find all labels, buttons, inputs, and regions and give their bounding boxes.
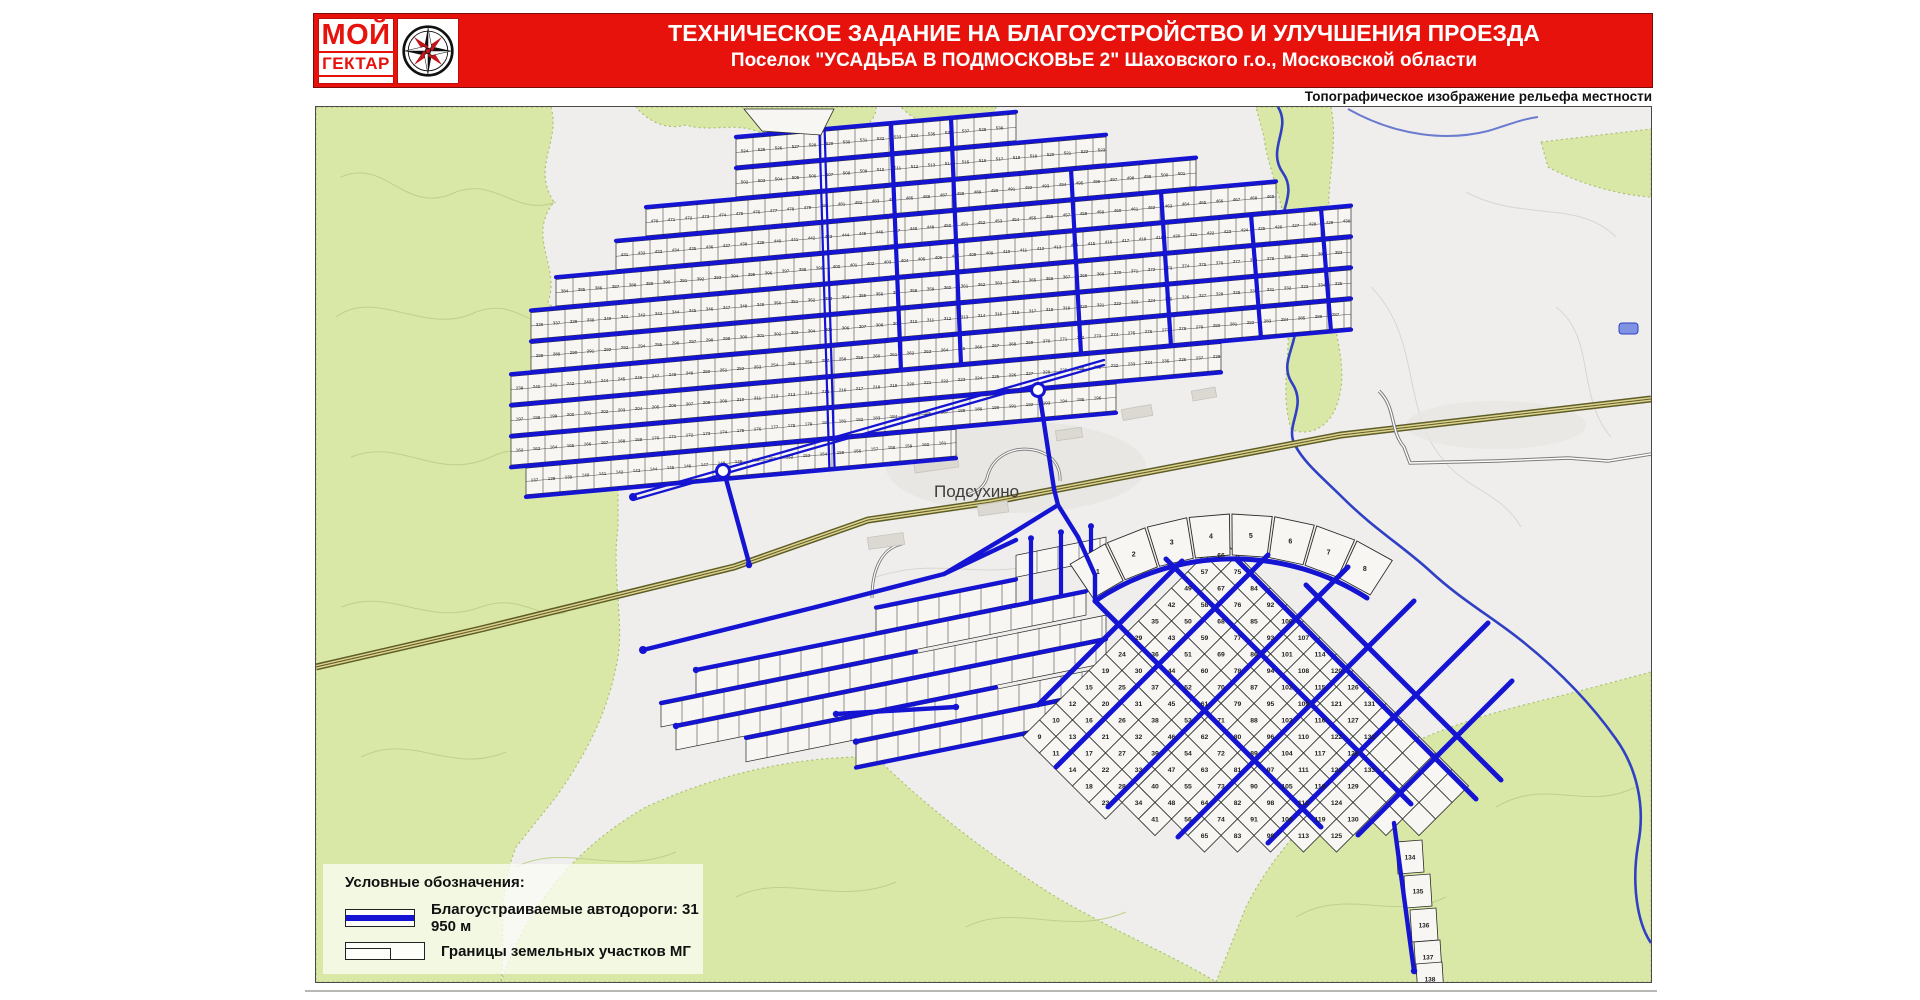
svg-text:133: 133 (1364, 767, 1376, 774)
svg-text:317: 317 (1029, 309, 1037, 314)
svg-text:132: 132 (1364, 734, 1376, 741)
svg-text:405: 405 (918, 257, 926, 262)
svg-text:97: 97 (1267, 767, 1275, 774)
svg-text:500: 500 (1161, 173, 1169, 178)
svg-text:139: 139 (565, 474, 573, 479)
svg-text:124: 124 (1331, 800, 1343, 807)
svg-text:332: 332 (1284, 286, 1292, 291)
svg-text:385: 385 (578, 287, 586, 292)
svg-text:5: 5 (1249, 533, 1253, 540)
svg-text:393: 393 (714, 275, 722, 280)
svg-text:81: 81 (1234, 767, 1242, 774)
svg-text:313: 313 (961, 315, 969, 320)
village-label: Подсухино (934, 482, 1019, 501)
document-subtitle: Поселок "УСАДЬБА В ПОДМОСКОВЬЕ 2" Шаховс… (564, 50, 1644, 72)
svg-text:377: 377 (1233, 259, 1241, 264)
svg-text:206: 206 (669, 403, 677, 408)
svg-text:347: 347 (723, 305, 731, 310)
svg-text:173: 173 (703, 431, 711, 436)
svg-text:310: 310 (910, 319, 918, 324)
svg-text:343: 343 (655, 311, 663, 316)
svg-text:197: 197 (516, 417, 524, 422)
svg-text:51: 51 (1184, 652, 1192, 659)
svg-text:333: 333 (1301, 284, 1309, 289)
svg-text:314: 314 (978, 313, 986, 318)
svg-text:491: 491 (1008, 186, 1016, 191)
svg-text:196: 196 (1094, 396, 1102, 401)
svg-text:61: 61 (1201, 701, 1209, 708)
svg-text:82: 82 (1234, 800, 1242, 807)
svg-text:402: 402 (867, 261, 875, 266)
svg-text:168: 168 (618, 439, 626, 444)
svg-text:519: 519 (1030, 153, 1038, 158)
svg-text:161: 161 (939, 441, 947, 446)
svg-text:307: 307 (859, 324, 867, 329)
svg-text:52: 52 (1184, 685, 1192, 692)
svg-text:376: 376 (1216, 261, 1224, 266)
svg-text:355: 355 (859, 293, 867, 298)
svg-text:2: 2 (1132, 552, 1136, 559)
svg-text:120: 120 (1331, 668, 1343, 675)
svg-text:391: 391 (680, 278, 688, 283)
svg-text:421: 421 (1190, 232, 1198, 237)
svg-text:20: 20 (1102, 701, 1110, 708)
svg-text:87: 87 (1250, 685, 1258, 692)
svg-text:410: 410 (1003, 249, 1011, 254)
svg-text:445: 445 (859, 231, 867, 236)
svg-text:163: 163 (533, 446, 541, 451)
svg-text:360: 360 (944, 285, 952, 290)
svg-text:137: 137 (531, 477, 539, 482)
svg-text:92: 92 (1267, 602, 1275, 609)
legend-item-roads: Благоустраиваемые автодороги: 31 950 м (345, 901, 703, 935)
svg-text:513: 513 (928, 163, 936, 168)
svg-text:351: 351 (791, 299, 799, 304)
svg-text:403: 403 (884, 260, 892, 265)
svg-text:427: 427 (1292, 223, 1300, 228)
svg-text:45: 45 (1168, 701, 1176, 708)
svg-text:318: 318 (1046, 307, 1054, 312)
svg-text:274: 274 (1111, 332, 1119, 337)
svg-text:22: 22 (1102, 767, 1110, 774)
svg-text:237: 237 (1196, 355, 1204, 360)
svg-text:234: 234 (1145, 360, 1153, 365)
svg-text:379: 379 (1267, 256, 1275, 261)
svg-text:153: 153 (803, 453, 811, 458)
svg-text:297: 297 (689, 339, 697, 344)
svg-text:235: 235 (1162, 359, 1170, 364)
svg-text:423: 423 (1224, 229, 1232, 234)
svg-text:160: 160 (922, 442, 930, 447)
svg-text:394: 394 (731, 273, 739, 278)
svg-text:105: 105 (1281, 784, 1293, 791)
svg-text:349: 349 (757, 302, 765, 307)
svg-text:311: 311 (927, 318, 935, 323)
svg-text:291: 291 (587, 348, 595, 353)
svg-text:324: 324 (1148, 298, 1156, 303)
svg-text:242: 242 (567, 381, 575, 386)
svg-text:203: 203 (618, 408, 626, 413)
svg-text:527: 527 (792, 144, 800, 149)
svg-text:85: 85 (1250, 619, 1258, 626)
svg-text:112: 112 (1298, 800, 1309, 807)
svg-text:392: 392 (697, 276, 705, 281)
svg-text:288: 288 (536, 353, 544, 358)
svg-text:465: 465 (1199, 200, 1207, 205)
svg-text:460: 460 (1114, 208, 1122, 213)
svg-text:269: 269 (1026, 340, 1034, 345)
svg-text:47: 47 (1168, 767, 1176, 774)
svg-text:396: 396 (765, 270, 773, 275)
svg-text:164: 164 (550, 445, 558, 450)
svg-text:273: 273 (1094, 334, 1102, 339)
svg-text:32: 32 (1135, 734, 1143, 741)
svg-text:432: 432 (638, 251, 646, 256)
svg-text:496: 496 (1093, 179, 1101, 184)
svg-text:46: 46 (1168, 734, 1176, 741)
svg-text:37: 37 (1151, 685, 1159, 692)
svg-text:335: 335 (1335, 281, 1343, 286)
svg-text:294: 294 (638, 344, 646, 349)
svg-text:306: 306 (842, 325, 850, 330)
svg-text:365: 365 (1029, 278, 1037, 283)
svg-text:182: 182 (856, 417, 864, 422)
svg-text:409: 409 (986, 250, 994, 255)
svg-text:31: 31 (1135, 701, 1143, 708)
svg-text:529: 529 (826, 141, 834, 146)
svg-text:316: 316 (1012, 310, 1020, 315)
svg-text:341: 341 (621, 314, 629, 319)
svg-text:137: 137 (1423, 955, 1434, 962)
svg-text:12: 12 (1069, 701, 1077, 708)
svg-text:80: 80 (1234, 734, 1242, 741)
svg-text:261: 261 (890, 352, 898, 357)
svg-text:136: 136 (1419, 923, 1430, 930)
svg-text:422: 422 (1207, 230, 1215, 235)
svg-text:499: 499 (1144, 174, 1152, 179)
svg-text:395: 395 (748, 272, 756, 277)
svg-text:433: 433 (655, 249, 663, 254)
svg-text:104: 104 (1281, 751, 1293, 758)
svg-text:199: 199 (550, 414, 558, 419)
svg-text:58: 58 (1201, 602, 1209, 609)
svg-text:429: 429 (1326, 220, 1334, 225)
svg-text:171: 171 (669, 434, 677, 439)
svg-text:96: 96 (1267, 734, 1275, 741)
svg-text:40: 40 (1151, 784, 1159, 791)
svg-text:94: 94 (1267, 668, 1275, 675)
svg-text:138: 138 (1425, 977, 1436, 983)
svg-text:28: 28 (1118, 784, 1126, 791)
svg-text:415: 415 (1088, 241, 1096, 246)
svg-text:387: 387 (612, 284, 620, 289)
svg-text:147: 147 (701, 462, 709, 467)
svg-text:441: 441 (791, 237, 799, 242)
svg-text:166: 166 (584, 442, 592, 447)
svg-text:181: 181 (839, 419, 847, 424)
svg-text:250: 250 (703, 369, 711, 374)
svg-text:155: 155 (837, 450, 845, 455)
svg-text:508: 508 (843, 170, 851, 175)
svg-text:222: 222 (941, 378, 949, 383)
svg-text:109: 109 (1298, 701, 1310, 708)
svg-text:25: 25 (1118, 685, 1126, 692)
svg-text:49: 49 (1184, 586, 1192, 593)
svg-text:201: 201 (584, 411, 592, 416)
svg-text:259: 259 (856, 355, 864, 360)
svg-text:512: 512 (911, 164, 919, 169)
pond (1619, 323, 1638, 334)
svg-text:283: 283 (1264, 318, 1272, 323)
svg-text:517: 517 (996, 156, 1004, 161)
svg-text:397: 397 (782, 269, 790, 274)
svg-text:511: 511 (894, 166, 902, 171)
svg-text:292: 292 (604, 347, 612, 352)
svg-text:505: 505 (792, 175, 800, 180)
svg-text:532: 532 (877, 136, 885, 141)
svg-text:21: 21 (1102, 734, 1110, 741)
svg-text:227: 227 (1026, 371, 1034, 376)
svg-text:498: 498 (1127, 176, 1135, 181)
svg-text:426: 426 (1275, 224, 1283, 229)
svg-text:174: 174 (720, 429, 728, 434)
svg-text:476: 476 (753, 209, 761, 214)
svg-text:477: 477 (770, 208, 778, 213)
svg-text:321: 321 (1097, 302, 1105, 307)
svg-text:192: 192 (1026, 402, 1034, 407)
svg-text:275: 275 (1128, 331, 1136, 336)
svg-text:79: 79 (1234, 701, 1242, 708)
svg-text:293: 293 (621, 345, 629, 350)
svg-text:72: 72 (1217, 751, 1225, 758)
svg-text:57: 57 (1201, 569, 1209, 576)
svg-text:467: 467 (1233, 197, 1241, 202)
svg-text:282: 282 (1247, 320, 1255, 325)
svg-text:23: 23 (1102, 800, 1110, 807)
svg-text:518: 518 (1013, 155, 1021, 160)
svg-text:525: 525 (758, 147, 766, 152)
svg-text:121: 121 (1331, 701, 1343, 708)
svg-text:490: 490 (991, 188, 999, 193)
svg-text:270: 270 (1043, 338, 1051, 343)
svg-text:478: 478 (787, 206, 795, 211)
svg-text:276: 276 (1145, 329, 1153, 334)
svg-text:175: 175 (737, 428, 745, 433)
svg-text:369: 369 (1097, 271, 1105, 276)
svg-text:406: 406 (935, 255, 943, 260)
svg-text:328: 328 (1216, 292, 1224, 297)
svg-text:205: 205 (652, 404, 660, 409)
svg-text:221: 221 (924, 380, 932, 385)
svg-text:86: 86 (1250, 652, 1258, 659)
svg-text:158: 158 (888, 445, 896, 450)
svg-text:74: 74 (1217, 817, 1225, 824)
svg-text:440: 440 (774, 238, 782, 243)
svg-text:285: 285 (1298, 315, 1306, 320)
svg-text:78: 78 (1234, 668, 1242, 675)
svg-text:190: 190 (992, 405, 1000, 410)
svg-text:436: 436 (706, 245, 714, 250)
svg-text:90: 90 (1250, 784, 1258, 791)
svg-text:493: 493 (1042, 183, 1050, 188)
svg-text:208: 208 (703, 400, 711, 405)
svg-text:345: 345 (689, 308, 697, 313)
svg-text:38: 38 (1151, 718, 1159, 725)
svg-text:6: 6 (1288, 538, 1292, 545)
svg-text:44: 44 (1168, 668, 1176, 675)
svg-text:456: 456 (1046, 214, 1054, 219)
svg-text:366: 366 (1046, 276, 1054, 281)
svg-text:364: 364 (1012, 279, 1020, 284)
svg-text:388: 388 (629, 283, 637, 288)
svg-text:63: 63 (1201, 767, 1209, 774)
svg-text:162: 162 (516, 448, 524, 453)
svg-text:319: 319 (1063, 305, 1071, 310)
map-note: Топографическое изображение рельефа мест… (313, 89, 1652, 104)
svg-text:271: 271 (1060, 337, 1068, 342)
svg-text:264: 264 (941, 347, 949, 352)
svg-text:537: 537 (962, 129, 970, 134)
svg-text:449: 449 (927, 225, 935, 230)
svg-text:35: 35 (1151, 619, 1159, 626)
svg-text:128: 128 (1347, 751, 1359, 758)
svg-text:342: 342 (638, 313, 646, 318)
svg-text:236: 236 (1179, 357, 1187, 362)
svg-text:486: 486 (923, 194, 931, 199)
svg-text:390: 390 (663, 279, 671, 284)
svg-text:411: 411 (1020, 247, 1028, 252)
svg-text:372: 372 (1148, 267, 1156, 272)
svg-text:380: 380 (1284, 255, 1292, 260)
svg-text:520: 520 (1047, 152, 1055, 157)
svg-text:268: 268 (1009, 341, 1017, 346)
svg-text:450: 450 (944, 223, 952, 228)
svg-text:340: 340 (604, 316, 612, 321)
svg-text:176: 176 (754, 426, 762, 431)
svg-text:308: 308 (876, 322, 884, 327)
svg-text:55: 55 (1184, 784, 1192, 791)
svg-text:280: 280 (1213, 323, 1221, 328)
svg-text:362: 362 (978, 282, 986, 287)
svg-text:326: 326 (1182, 295, 1190, 300)
svg-text:384: 384 (561, 289, 569, 294)
svg-text:454: 454 (1012, 217, 1020, 222)
svg-text:116: 116 (1315, 718, 1326, 725)
legend-item-boundaries: Границы земельных участков МГ (345, 942, 703, 960)
svg-text:60: 60 (1201, 668, 1209, 675)
svg-text:359: 359 (927, 287, 935, 292)
svg-text:438: 438 (740, 242, 748, 247)
svg-text:62: 62 (1201, 734, 1209, 741)
svg-text:287: 287 (1332, 312, 1340, 317)
svg-text:416: 416 (1105, 240, 1113, 245)
svg-text:64: 64 (1201, 800, 1209, 807)
document-title: ТЕХНИЧЕСКОЕ ЗАДАНИЕ НА БЛАГОУСТРОЙСТВО И… (564, 20, 1644, 46)
svg-text:509: 509 (860, 169, 868, 174)
svg-text:193: 193 (1043, 400, 1051, 405)
svg-text:386: 386 (595, 286, 603, 291)
svg-text:452: 452 (978, 220, 986, 225)
svg-text:140: 140 (582, 473, 590, 478)
svg-text:459: 459 (1097, 209, 1105, 214)
svg-text:100: 100 (1281, 619, 1293, 626)
svg-text:113: 113 (1298, 833, 1309, 840)
svg-text:425: 425 (1258, 226, 1266, 231)
map-legend: Условные обозначения: Благоустраиваемые … (323, 864, 703, 974)
svg-text:238: 238 (1213, 354, 1221, 359)
svg-text:220: 220 (907, 381, 915, 386)
svg-text:338: 338 (570, 319, 578, 324)
svg-text:9: 9 (1038, 734, 1042, 741)
svg-text:243: 243 (584, 380, 592, 385)
svg-text:304: 304 (808, 328, 816, 333)
svg-text:534: 534 (911, 133, 919, 138)
svg-text:473: 473 (702, 214, 710, 219)
svg-text:488: 488 (957, 191, 965, 196)
svg-text:352: 352 (808, 297, 816, 302)
svg-text:117: 117 (1315, 751, 1326, 758)
svg-text:455: 455 (1029, 216, 1037, 221)
svg-text:539: 539 (996, 125, 1004, 130)
svg-text:135: 135 (1413, 889, 1424, 896)
svg-text:453: 453 (995, 219, 1003, 224)
svg-text:54: 54 (1184, 751, 1192, 758)
svg-text:398: 398 (799, 267, 807, 272)
svg-text:106: 106 (1281, 817, 1293, 824)
svg-text:125: 125 (1331, 833, 1343, 840)
svg-text:358: 358 (910, 288, 918, 293)
svg-text:363: 363 (995, 281, 1003, 286)
svg-text:217: 217 (856, 386, 864, 391)
svg-text:108: 108 (1298, 668, 1310, 675)
svg-text:122: 122 (1331, 734, 1343, 741)
svg-text:368: 368 (1080, 273, 1088, 278)
svg-text:169: 169 (635, 437, 643, 442)
svg-text:481: 481 (838, 202, 846, 207)
svg-text:177: 177 (771, 425, 779, 430)
svg-text:7: 7 (1327, 549, 1331, 556)
svg-text:487: 487 (940, 193, 948, 198)
legend-title: Условные обозначения: (345, 874, 703, 891)
svg-text:503: 503 (758, 178, 766, 183)
svg-text:195: 195 (1077, 397, 1085, 402)
svg-text:102: 102 (1281, 685, 1293, 692)
svg-text:165: 165 (567, 443, 575, 448)
svg-text:75: 75 (1234, 569, 1242, 576)
svg-text:213: 213 (788, 392, 796, 397)
svg-text:497: 497 (1110, 177, 1118, 182)
svg-text:320: 320 (1080, 304, 1088, 309)
svg-text:30: 30 (1135, 668, 1143, 675)
svg-text:471: 471 (668, 217, 676, 222)
svg-text:71: 71 (1217, 718, 1225, 725)
svg-text:412: 412 (1037, 246, 1045, 251)
svg-text:95: 95 (1267, 701, 1275, 708)
svg-text:115: 115 (1315, 685, 1326, 692)
svg-text:255: 255 (788, 361, 796, 366)
svg-text:24: 24 (1118, 652, 1126, 659)
svg-text:437: 437 (723, 243, 731, 248)
svg-text:214: 214 (805, 391, 813, 396)
svg-text:462: 462 (1148, 205, 1156, 210)
svg-text:538: 538 (979, 127, 987, 132)
svg-text:494: 494 (1059, 182, 1067, 187)
svg-text:19: 19 (1102, 668, 1110, 675)
svg-text:126: 126 (1347, 685, 1359, 692)
svg-text:84: 84 (1250, 586, 1258, 593)
svg-text:143: 143 (633, 468, 641, 473)
svg-text:39: 39 (1151, 751, 1159, 758)
